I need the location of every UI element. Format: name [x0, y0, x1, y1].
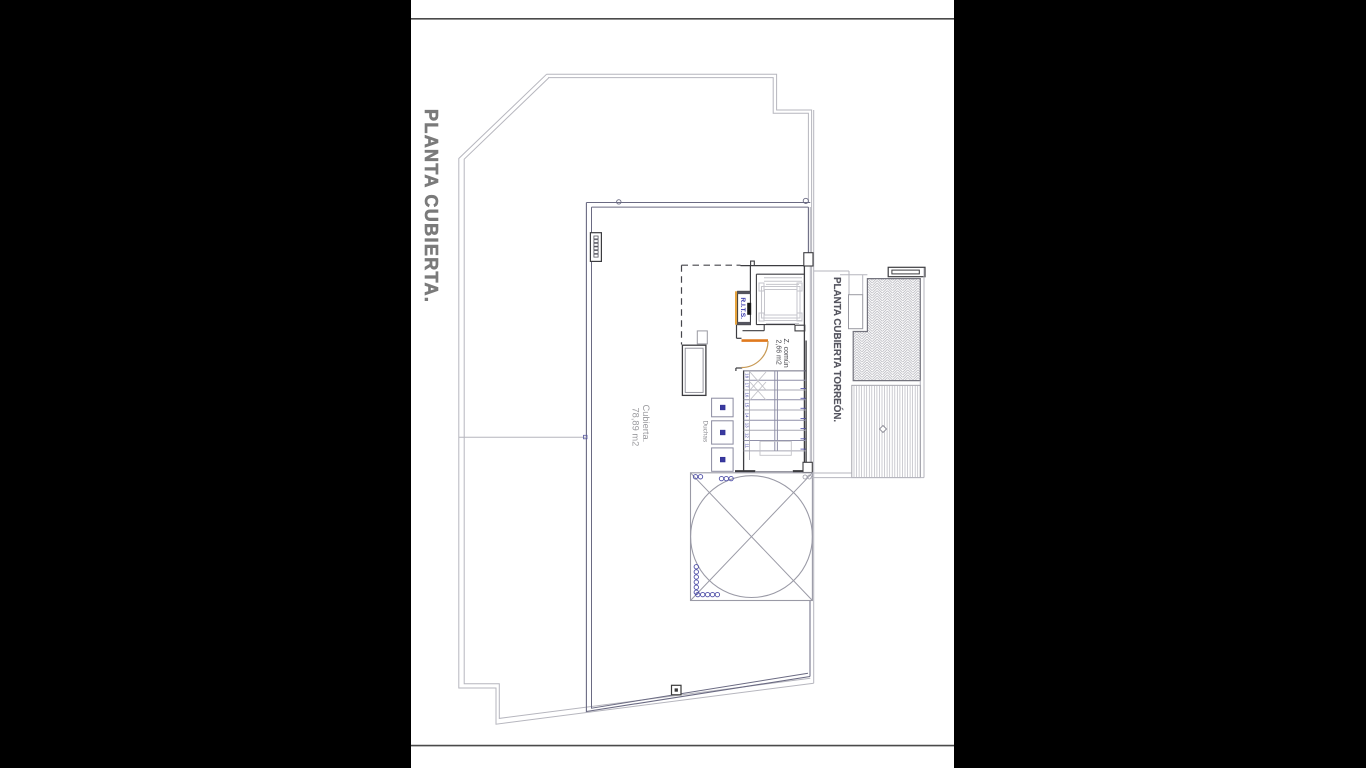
svg-text:14: 14 — [744, 413, 749, 418]
svg-text:18: 18 — [744, 373, 749, 378]
svg-text:16: 16 — [744, 392, 749, 397]
svg-text:12: 12 — [744, 433, 749, 438]
svg-text:PLANTA CUBIERTA TORREÓN.: PLANTA CUBIERTA TORREÓN. — [831, 277, 843, 422]
svg-text:17: 17 — [744, 383, 749, 388]
svg-text:15: 15 — [744, 402, 749, 407]
svg-text:R.I.T.S.: R.I.T.S. — [739, 297, 746, 319]
svg-text:Z. común: Z. común — [782, 339, 789, 368]
svg-text:PLANTA CUBIERTA.: PLANTA CUBIERTA. — [421, 109, 441, 303]
svg-text:Cubierta.: Cubierta. — [641, 405, 651, 443]
svg-text:11: 11 — [744, 443, 749, 448]
svg-text:2,66 m2: 2,66 m2 — [774, 340, 781, 365]
svg-text:78,89 m2: 78,89 m2 — [631, 408, 641, 447]
svg-text:13: 13 — [744, 423, 749, 428]
svg-text:Duchas: Duchas — [701, 421, 708, 443]
